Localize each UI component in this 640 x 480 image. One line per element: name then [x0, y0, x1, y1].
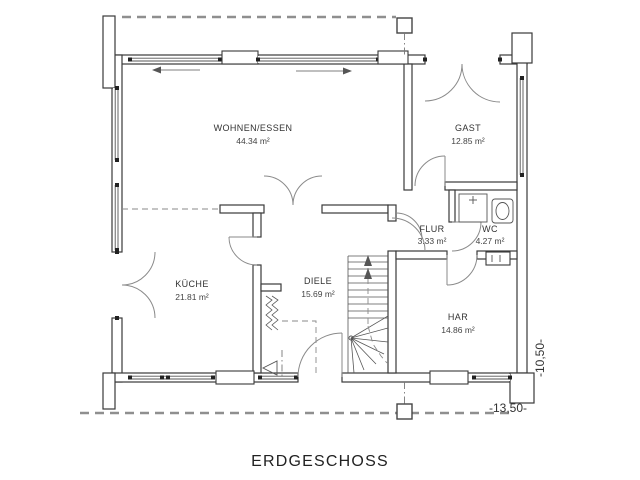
window-bottom-kitchen: [128, 374, 215, 381]
column-marker-bottom: [397, 404, 412, 419]
stairs-winder-treads: [349, 316, 388, 373]
door-arc-entrance: [298, 333, 342, 377]
room-label-gast-name: GAST: [455, 123, 481, 133]
room-label-flur-area: 3.33 m²: [418, 236, 447, 246]
dimension-vertical: -10,50-: [533, 339, 547, 377]
page-title: ERDGESCHOSS: [251, 453, 389, 470]
window-left-upper: [113, 86, 121, 162]
door-arc-har: [447, 255, 477, 285]
toilet-icon: [492, 199, 513, 223]
room-label-flur-name: FLUR: [419, 224, 444, 234]
window-sill-top-2: [378, 51, 408, 64]
window-sill-top-1: [222, 51, 258, 64]
pilaster-bottom-left: [103, 373, 115, 409]
door-arc-guest-terrace-right: [462, 64, 500, 102]
window-right-guest: [518, 76, 526, 177]
room-label-wohnen-name: WOHNEN/ESSEN: [214, 123, 293, 133]
door-arc-living-hall-left: [264, 176, 293, 205]
dimension-horizontal: -13,50-: [489, 401, 527, 415]
window-sill-bottom-1: [216, 371, 254, 384]
annotations: [80, 17, 512, 419]
room-label-wohnen-area: 44.34 m²: [236, 136, 270, 146]
window-bottom-har: [472, 374, 512, 381]
column-marker-top: [397, 18, 412, 33]
room-label-har-area: 14.86 m²: [441, 325, 475, 335]
room-label-kueche-name: KÜCHE: [175, 279, 209, 289]
window-left-lower: [113, 183, 121, 252]
shaft-zigzag-icon: [266, 296, 278, 330]
door-arc-guest-flur: [415, 156, 445, 186]
pilaster-top-left: [103, 16, 115, 88]
sliding-arrow-right: [296, 68, 352, 75]
door-arc-kitchen-terrace-bottom: [122, 285, 155, 318]
room-label-wc-name: WC: [482, 224, 498, 234]
washbasin-icon: [486, 252, 510, 265]
stairs: [348, 255, 388, 373]
door-arc-kitchen-terrace-top: [122, 252, 155, 285]
room-label-wc-area: 4.27 m²: [476, 236, 505, 246]
floor-plan-drawing: WOHNEN/ESSEN 44.34 m² GAST 12.85 m² KÜCH…: [0, 0, 640, 480]
stairs-up-arrow-icon: [364, 255, 372, 266]
shower-icon: [459, 194, 487, 222]
room-label-diele-area: 15.69 m²: [301, 289, 335, 299]
door-arc-kitchen-hall: [229, 237, 257, 265]
door-arc-living-hall-right: [293, 176, 322, 205]
room-label-kueche-area: 21.81 m²: [175, 292, 209, 302]
window-bottom-diele: [258, 374, 298, 381]
stairs-walkline: [364, 255, 387, 363]
stairs-up-arrow-icon: [364, 268, 372, 279]
window-sill-bottom-2: [430, 371, 468, 384]
window-top-living: [128, 56, 222, 63]
room-label-diele-name: DIELE: [304, 276, 332, 286]
sliding-arrow-left: [152, 67, 200, 74]
window-top-living-2: [256, 56, 380, 63]
exterior-walls: [103, 16, 534, 409]
room-label-har-name: HAR: [448, 312, 468, 322]
door-arc-diele-flur: [392, 218, 425, 251]
pilaster-top-right: [512, 33, 532, 63]
door-arc-guest-terrace-left: [425, 64, 462, 101]
pilaster-bottom-right: [510, 373, 534, 403]
floor-plan-page: WOHNEN/ESSEN 44.34 m² GAST 12.85 m² KÜCH…: [0, 0, 640, 480]
room-label-gast-area: 12.85 m²: [451, 136, 485, 146]
room-labels: WOHNEN/ESSEN 44.34 m² GAST 12.85 m² KÜCH…: [175, 123, 504, 335]
